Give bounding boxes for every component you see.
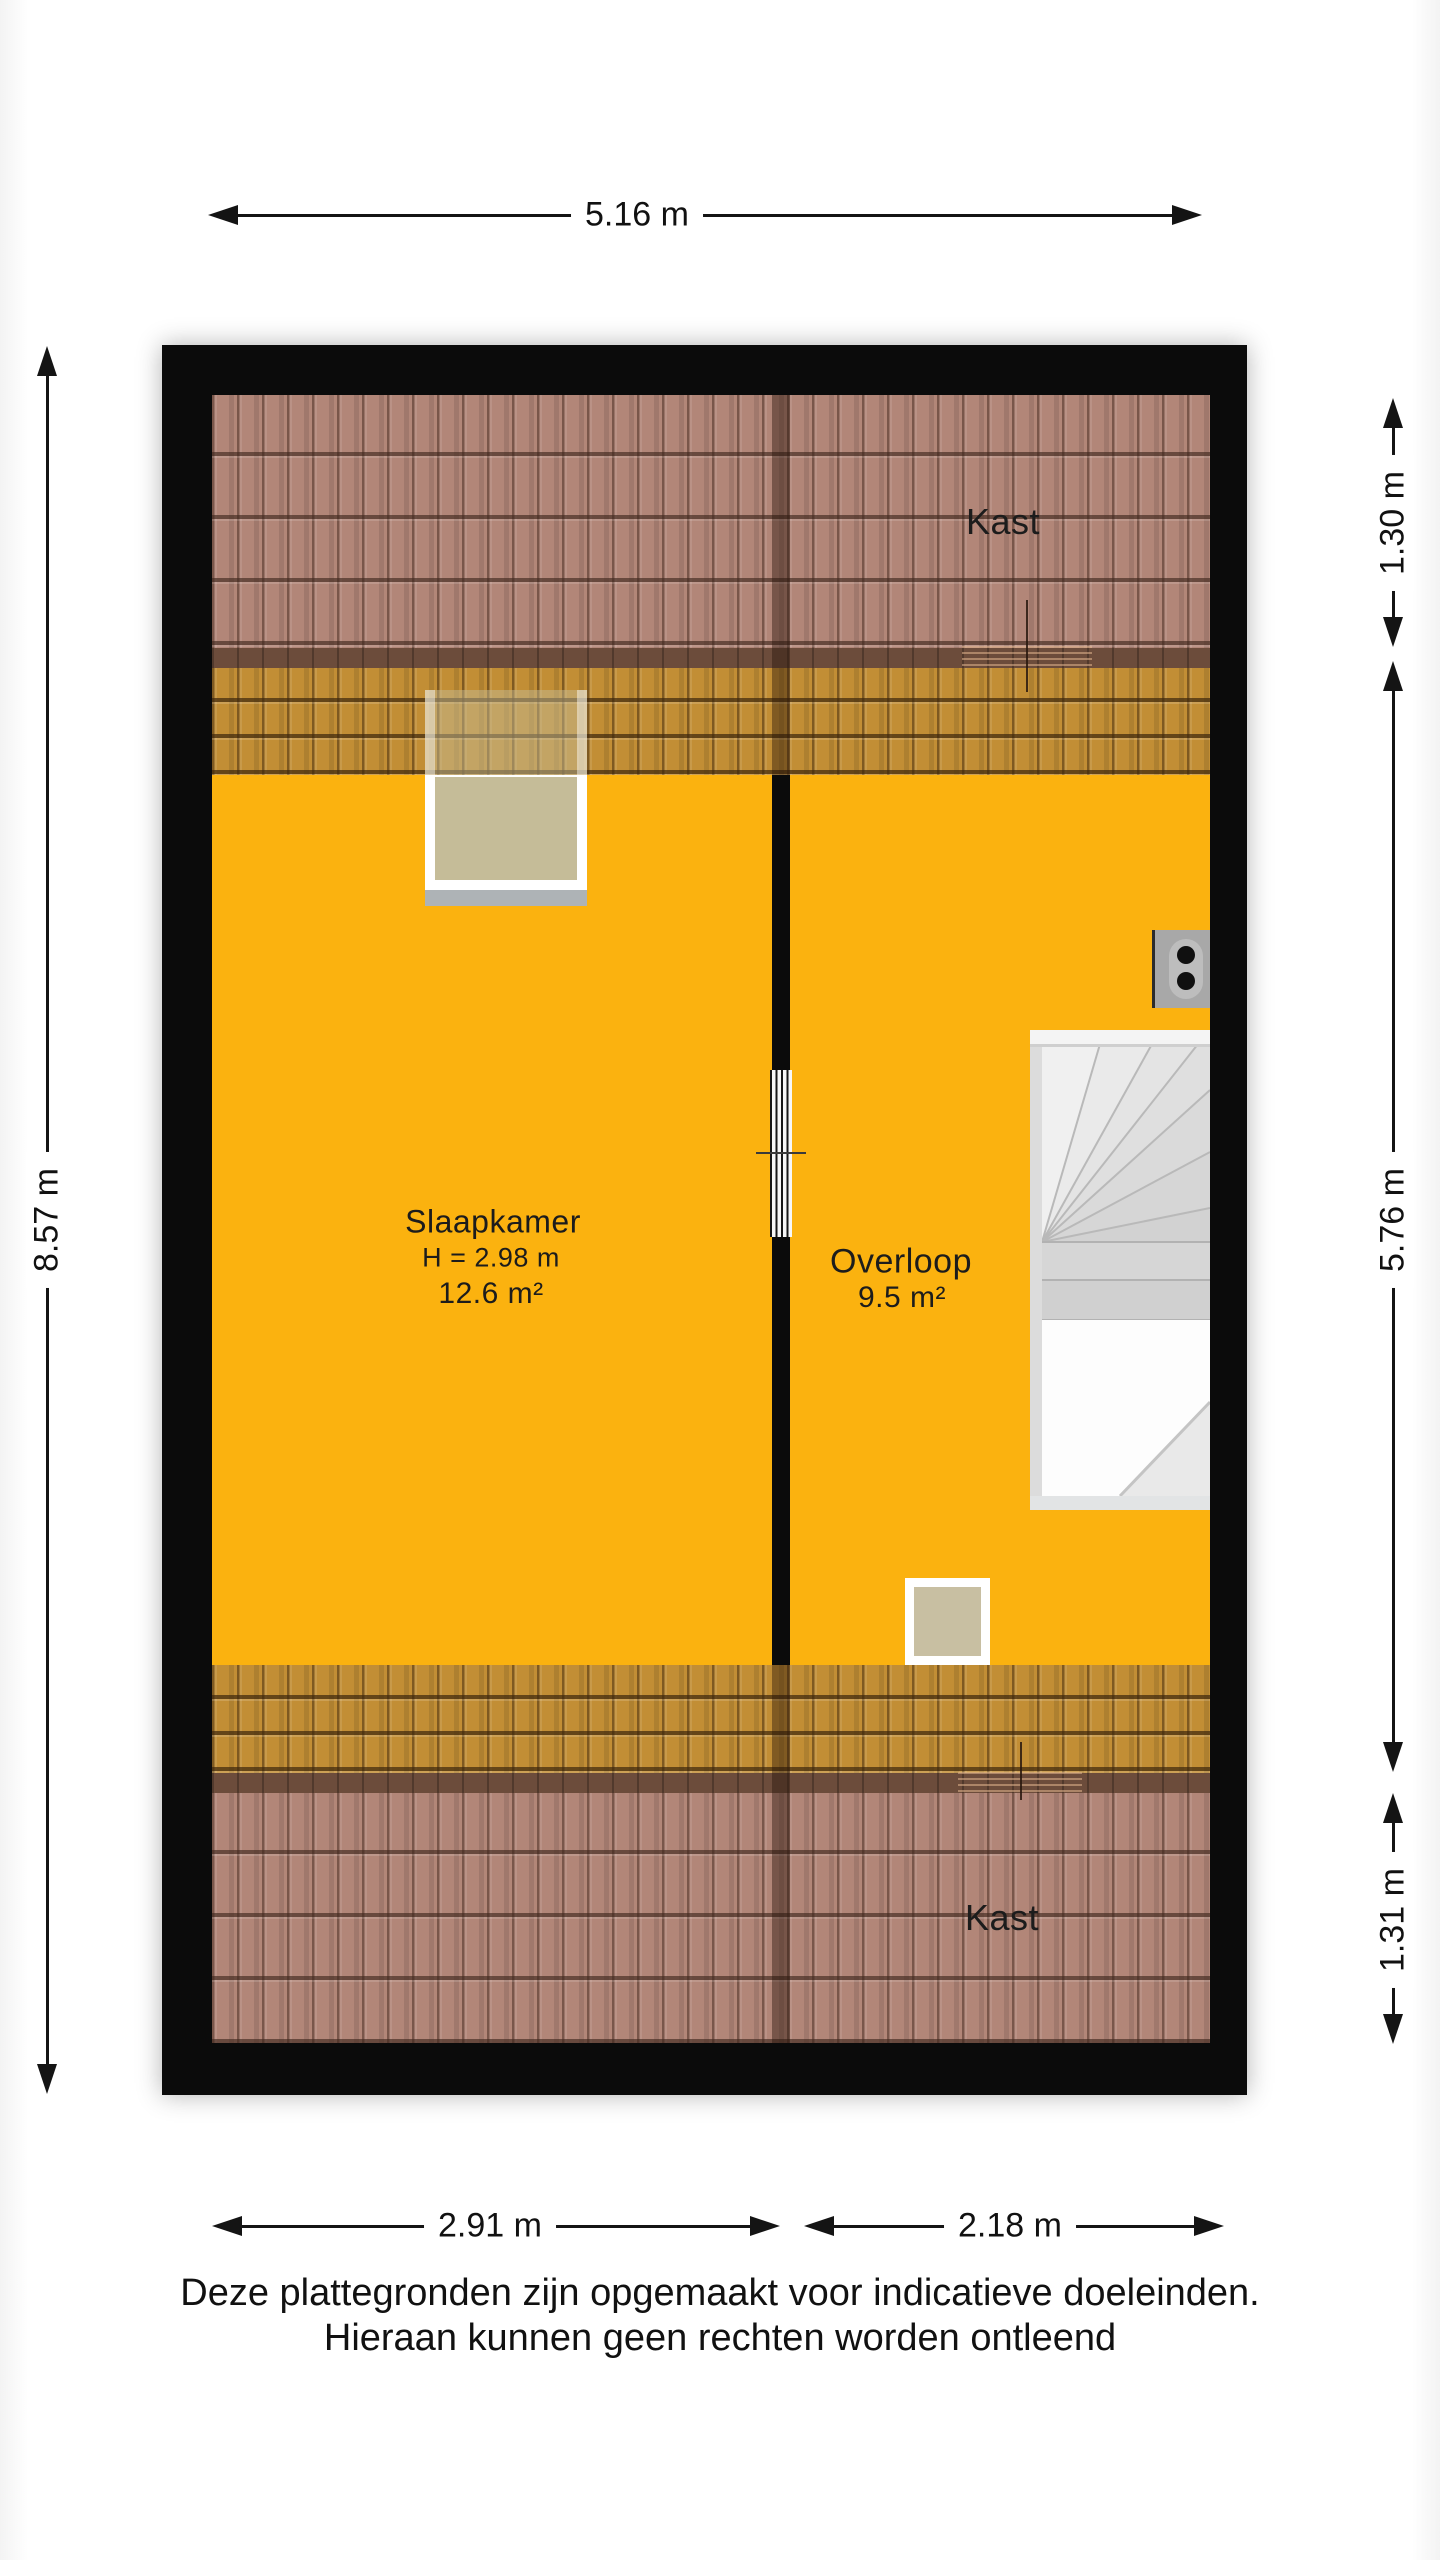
room-label-overloop: Overloop bbox=[830, 1243, 972, 1282]
dimension-label: 1.31 m bbox=[1372, 1852, 1415, 1988]
dimension-right-top: 1.30 m bbox=[1379, 400, 1407, 645]
arrowhead-up-icon bbox=[37, 346, 57, 376]
roof-tiles-top-outer bbox=[212, 395, 1210, 648]
dimension-bottom-right: 2.18 m bbox=[806, 2213, 1222, 2239]
disclaimer-line-1: Deze plattegronden zijn opgemaakt voor i… bbox=[0, 2272, 1440, 2315]
dimension-label: 5.76 m bbox=[1372, 1152, 1415, 1288]
arrowhead-up-icon bbox=[1383, 661, 1403, 691]
dimension-label: 1.30 m bbox=[1372, 455, 1415, 591]
arrowhead-down-icon bbox=[1383, 1742, 1403, 1772]
ridge-vent-top-line bbox=[1026, 600, 1028, 692]
room-label-kast-bottom: Kast bbox=[965, 1897, 1039, 1939]
ventilation-capsule bbox=[1169, 939, 1203, 999]
floorplan-page: Kast Slaapkamer H = 2.98 m 12.6 m² Overl… bbox=[0, 0, 1440, 2560]
skylight-roof-part bbox=[425, 690, 587, 775]
ventilation-dot-icon bbox=[1177, 946, 1195, 964]
staircase bbox=[1030, 1030, 1210, 1510]
floorplan-outer-walls: Kast Slaapkamer H = 2.98 m 12.6 m² Overl… bbox=[162, 345, 1247, 2095]
room-label-kast-top: Kast bbox=[966, 501, 1040, 543]
room-area-slaapkamer: 12.6 m² bbox=[438, 1277, 543, 1311]
ridge-vent-bottom-line bbox=[1020, 1742, 1022, 1800]
arrowhead-right-icon bbox=[750, 2216, 780, 2236]
floorplan-interior: Kast Slaapkamer H = 2.98 m 12.6 m² Overl… bbox=[212, 395, 1210, 2043]
arrowhead-down-icon bbox=[1383, 617, 1403, 647]
arrowhead-up-icon bbox=[1383, 398, 1403, 428]
arrowhead-left-icon bbox=[208, 205, 238, 225]
arrowhead-down-icon bbox=[37, 2064, 57, 2094]
arrowhead-right-icon bbox=[1194, 2216, 1224, 2236]
roof-tiles-bottom-inner bbox=[212, 1665, 1210, 1773]
door-threshold-line bbox=[756, 1152, 806, 1154]
room-ceiling-height-slaapkamer: H = 2.98 m bbox=[422, 1243, 560, 1274]
room-label-slaapkamer: Slaapkamer bbox=[405, 1204, 581, 1241]
dimension-right-middle: 5.76 m bbox=[1379, 663, 1407, 1770]
arrowhead-right-icon bbox=[1172, 205, 1202, 225]
skylight-sill bbox=[425, 890, 587, 906]
skylight-frame bbox=[425, 775, 587, 890]
dimension-left-height: 8.57 m bbox=[33, 348, 61, 2092]
roof-window-small bbox=[905, 1578, 990, 1665]
skylight-window bbox=[425, 690, 587, 906]
arrowhead-up-icon bbox=[1383, 1793, 1403, 1823]
dimension-label: 5.16 m bbox=[571, 194, 703, 237]
arrowhead-down-icon bbox=[1383, 2014, 1403, 2044]
dimension-right-bottom: 1.31 m bbox=[1379, 1795, 1407, 2042]
disclaimer-line-2: Hieraan kunnen geen rechten worden ontle… bbox=[0, 2317, 1440, 2360]
mechanical-ventilation-unit bbox=[1152, 930, 1210, 1008]
roof-tiles-bottom-outer bbox=[212, 1793, 1210, 2043]
dimension-top-width: 5.16 m bbox=[210, 202, 1200, 228]
dimension-label: 8.57 m bbox=[26, 1152, 69, 1288]
dimension-line bbox=[234, 214, 1176, 217]
roof-tiles-top-inner bbox=[212, 668, 1210, 775]
arrowhead-left-icon bbox=[804, 2216, 834, 2236]
dimension-bottom-left: 2.91 m bbox=[214, 2213, 778, 2239]
room-area-overloop: 9.5 m² bbox=[858, 1281, 946, 1315]
ventilation-dot-icon bbox=[1177, 972, 1195, 990]
dimension-label: 2.91 m bbox=[424, 2205, 556, 2248]
dimension-label: 2.18 m bbox=[944, 2205, 1076, 2248]
arrowhead-left-icon bbox=[212, 2216, 242, 2236]
